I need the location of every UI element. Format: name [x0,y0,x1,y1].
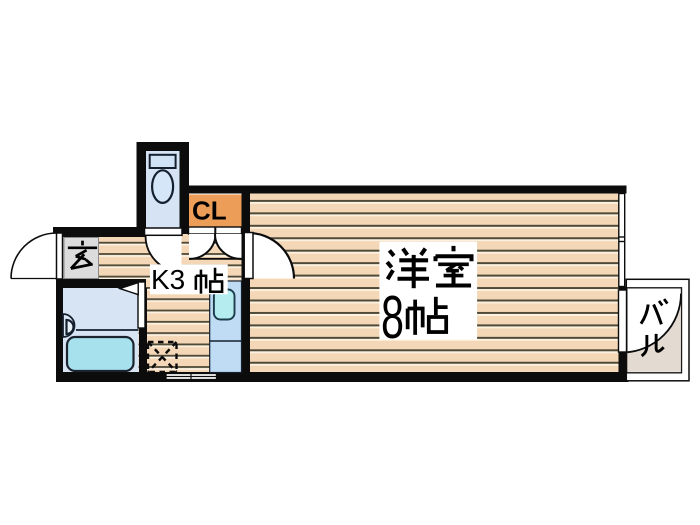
svg-text:8: 8 [381,284,404,351]
svg-text:K3: K3 [151,264,185,295]
svg-text:CL: CL [192,196,227,226]
